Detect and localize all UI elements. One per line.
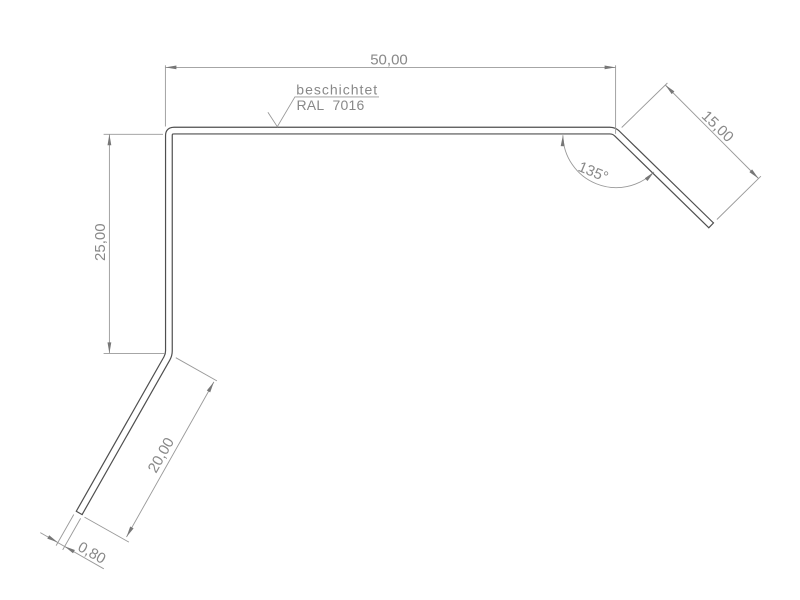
svg-text:50,00: 50,00 <box>370 51 408 68</box>
svg-text:RAL 7016: RAL 7016 <box>297 97 365 113</box>
svg-text:0,80: 0,80 <box>75 538 109 567</box>
svg-text:15,00: 15,00 <box>698 108 737 146</box>
svg-text:25,00: 25,00 <box>92 223 109 261</box>
svg-text:beschichtet: beschichtet <box>296 82 378 98</box>
